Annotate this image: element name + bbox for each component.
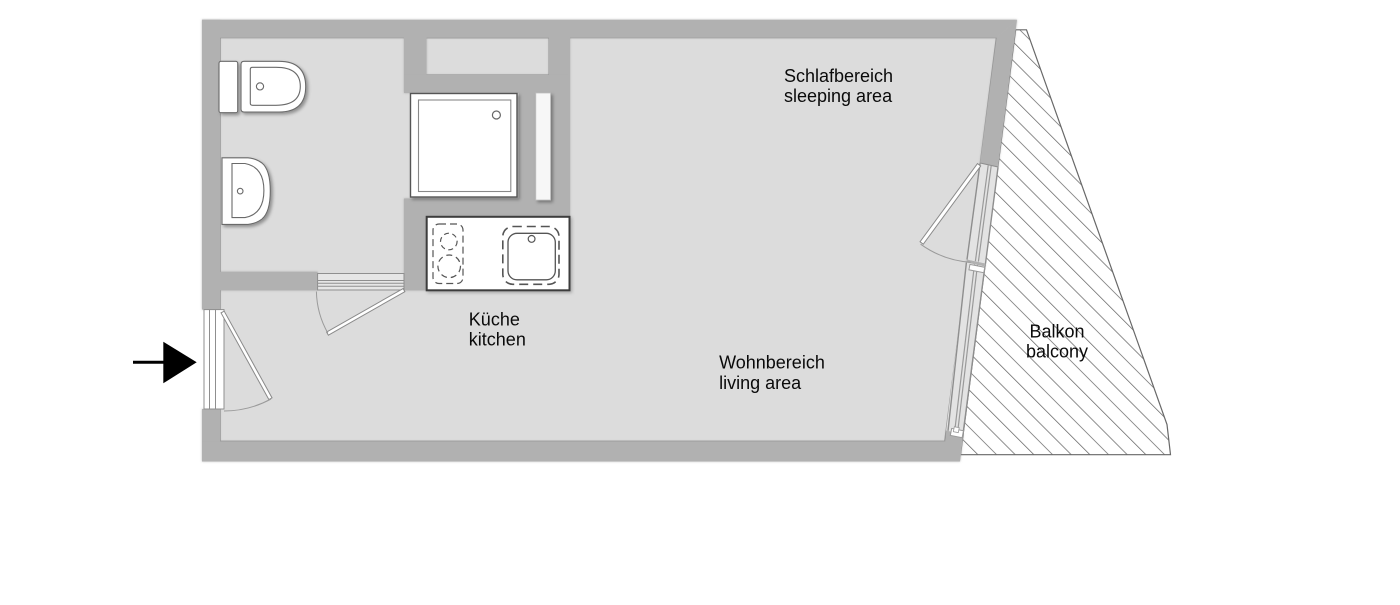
svg-text:Wohnbereich: Wohnbereich bbox=[719, 353, 825, 373]
svg-text:sleeping area: sleeping area bbox=[784, 86, 893, 106]
svg-text:Balkon: Balkon bbox=[1029, 322, 1084, 342]
svg-text:Schlafbereich: Schlafbereich bbox=[784, 66, 893, 86]
svg-text:balcony: balcony bbox=[1026, 342, 1088, 362]
svg-text:kitchen: kitchen bbox=[469, 330, 526, 350]
svg-text:Küche: Küche bbox=[469, 310, 520, 330]
svg-text:living area: living area bbox=[719, 373, 802, 393]
